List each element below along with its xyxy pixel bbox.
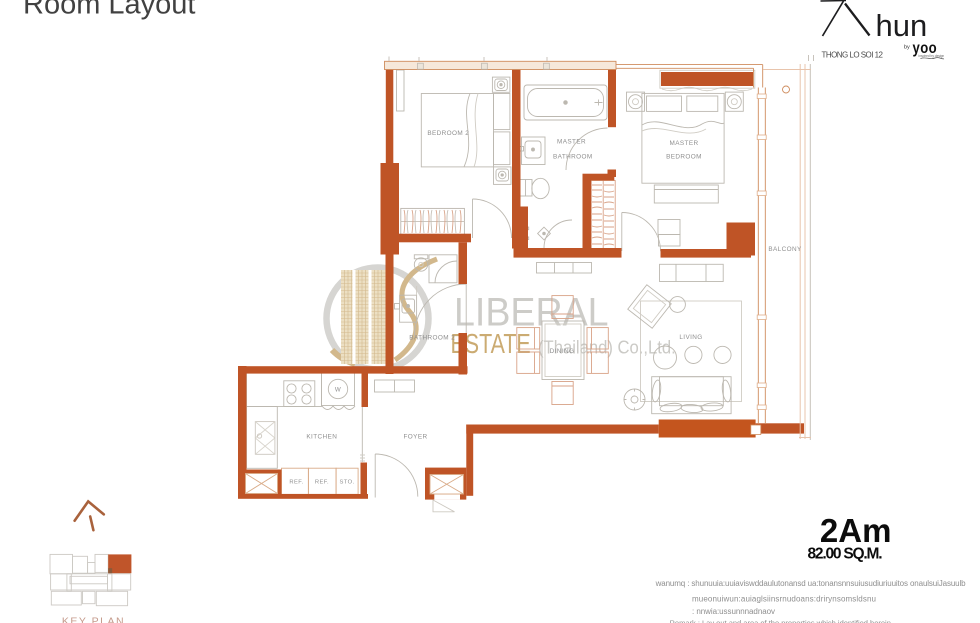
svg-text:: nnwia:ussunnnadnaov: : nnwia:ussunnnadnaov: [692, 607, 775, 616]
svg-text:DINING: DINING: [550, 348, 575, 355]
svg-text:STO.: STO.: [339, 480, 354, 486]
svg-text:LIBERAL: LIBERAL: [454, 291, 609, 335]
svg-text:hun: hun: [876, 8, 928, 43]
svg-text:BATHROOM 2: BATHROOM 2: [409, 335, 455, 342]
svg-text:KEY PLAN: KEY PLAN: [62, 616, 125, 623]
svg-text:REF.: REF.: [315, 480, 329, 486]
svg-text:Room Layout: Room Layout: [23, 0, 196, 21]
svg-text:KITCHEN: KITCHEN: [306, 434, 337, 441]
svg-text:LIVING: LIVING: [679, 334, 702, 341]
svg-text:MASTER: MASTER: [669, 140, 698, 147]
svg-text:mueonuiwun:auiaglsiinsrnudoans: mueonuiwun:auiaglsiinsrnudoans:drirynsom…: [692, 595, 876, 604]
svg-text:by: by: [904, 45, 910, 51]
svg-text:W: W: [335, 387, 341, 394]
svg-text:FOYER: FOYER: [403, 433, 427, 440]
svg-text:2Am: 2Am: [820, 512, 892, 549]
svg-text:82.00 SQ.M.: 82.00 SQ.M.: [808, 545, 883, 562]
svg-text:MASTER: MASTER: [557, 138, 586, 145]
svg-text:BALCONY: BALCONY: [768, 246, 802, 253]
svg-text:wanumq : shunuuia:uuiaviswddau: wanumq : shunuuia:uuiaviswddaulutonansd …: [655, 579, 967, 588]
svg-text:BATHROOM: BATHROOM: [553, 153, 593, 160]
svg-text:BEDROOM: BEDROOM: [666, 153, 702, 160]
svg-text:Remark : Lay out and area of t: Remark : Lay out and area of the propert…: [670, 619, 891, 623]
svg-text:inspired by design: inspired by design: [919, 54, 945, 58]
svg-text:THONG LO SOI 12: THONG LO SOI 12: [822, 51, 884, 60]
svg-text:REF.: REF.: [289, 480, 303, 486]
svg-text:BEDROOM 2: BEDROOM 2: [427, 130, 469, 137]
